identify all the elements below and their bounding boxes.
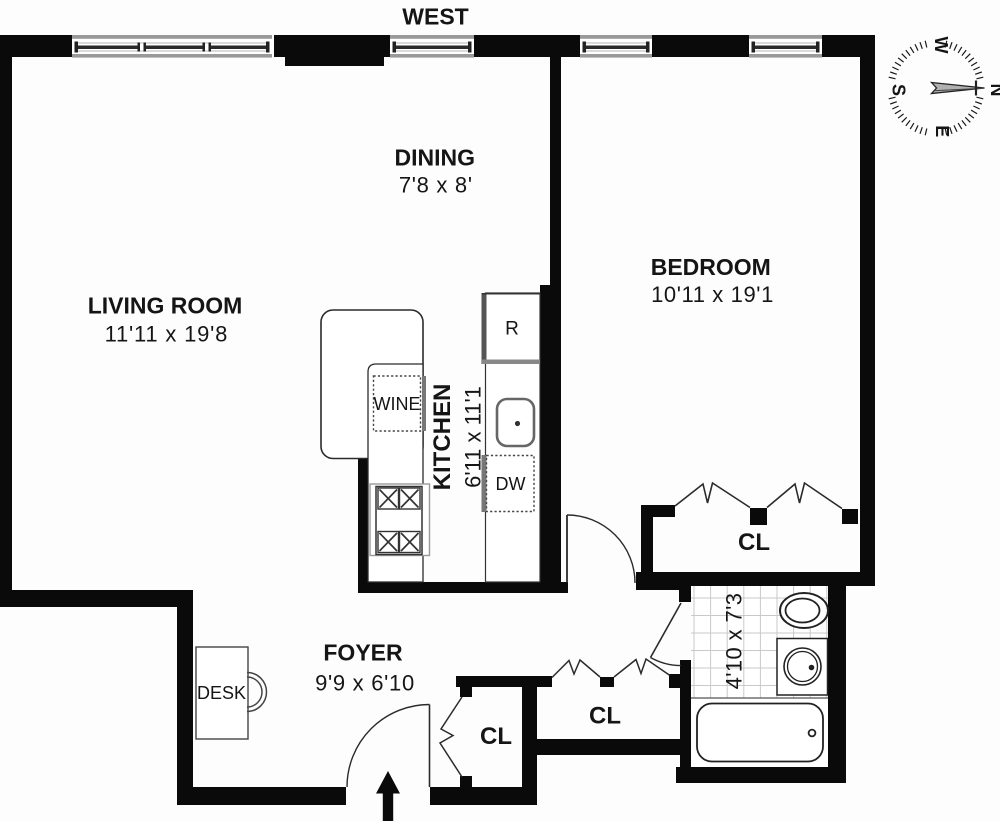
svg-text:9'9 x 6'10: 9'9 x 6'10: [315, 671, 415, 696]
svg-text:E: E: [932, 125, 952, 137]
svg-text:BEDROOM: BEDROOM: [651, 254, 771, 280]
svg-text:11'11 x 19'8: 11'11 x 19'8: [105, 322, 229, 347]
svg-text:LIVING ROOM: LIVING ROOM: [88, 293, 243, 319]
svg-text:R: R: [505, 319, 519, 340]
svg-text:S: S: [889, 84, 909, 96]
svg-text:DINING: DINING: [395, 145, 476, 171]
svg-text:4'10 x 7'3: 4'10 x 7'3: [721, 593, 746, 690]
svg-text:WEST: WEST: [402, 3, 468, 29]
svg-text:W: W: [931, 37, 951, 54]
svg-text:N: N: [987, 84, 1000, 97]
svg-text:CL: CL: [589, 703, 621, 730]
svg-text:7'8 x 8': 7'8 x 8': [399, 173, 473, 198]
svg-text:DESK: DESK: [197, 683, 246, 703]
svg-text:CL: CL: [480, 723, 512, 750]
svg-text:CL: CL: [738, 529, 770, 556]
svg-text:WINE: WINE: [374, 394, 421, 414]
svg-text:10'11 x 19'1: 10'11 x 19'1: [651, 282, 774, 307]
svg-text:6'11 x 11'1: 6'11 x 11'1: [461, 386, 486, 488]
svg-text:KITCHEN: KITCHEN: [429, 384, 456, 491]
svg-text:FOYER: FOYER: [323, 640, 403, 666]
svg-text:DW: DW: [496, 474, 526, 494]
